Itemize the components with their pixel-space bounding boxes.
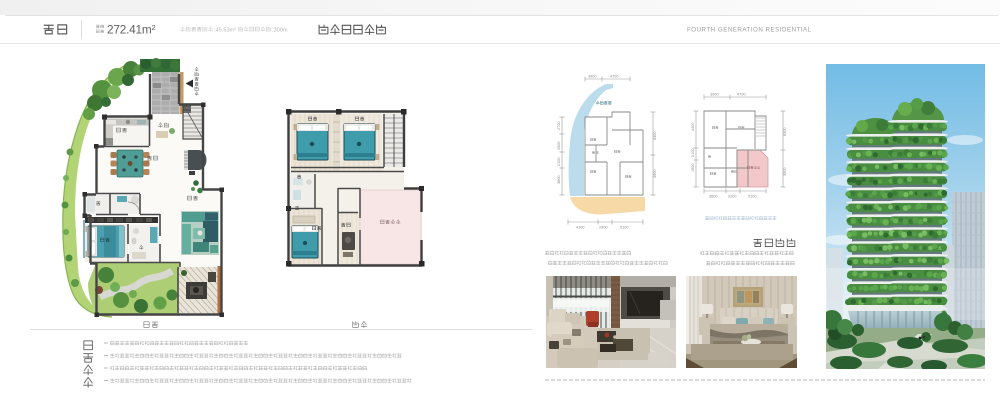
svg-text:5100: 5100 — [620, 226, 628, 230]
svg-text:2100: 2100 — [691, 149, 695, 157]
svg-text:2700: 2700 — [557, 122, 561, 130]
svg-text:3900: 3900 — [653, 170, 657, 178]
svg-text:2900: 2900 — [599, 226, 607, 230]
svg-text:272.41m2: 272.41m2 — [107, 23, 156, 37]
svg-text:5100: 5100 — [748, 195, 756, 199]
svg-text:4700: 4700 — [737, 93, 745, 97]
svg-text:3900: 3900 — [710, 93, 718, 97]
svg-text:3900: 3900 — [588, 75, 596, 79]
svg-text:4700: 4700 — [610, 75, 618, 79]
svg-text:4500: 4500 — [557, 142, 561, 150]
svg-text:3600: 3600 — [557, 176, 561, 184]
svg-text:4400: 4400 — [691, 123, 695, 131]
svg-text::45.53m²: :45.53m² — [214, 28, 236, 34]
svg-text:6300: 6300 — [783, 128, 787, 136]
svg-text:FOURTH GENERATION RESIDENTIAL: FOURTH GENERATION RESIDENTIAL — [687, 27, 812, 34]
svg-text:1900: 1900 — [691, 164, 695, 172]
svg-text:2200: 2200 — [728, 195, 736, 199]
svg-text:6300: 6300 — [653, 132, 657, 140]
svg-text:3900: 3900 — [783, 168, 787, 176]
svg-text::300m: :300m — [272, 28, 288, 34]
svg-text:3600: 3600 — [709, 195, 717, 199]
svg-text:2100: 2100 — [557, 158, 561, 166]
svg-text:4100: 4100 — [576, 226, 584, 230]
